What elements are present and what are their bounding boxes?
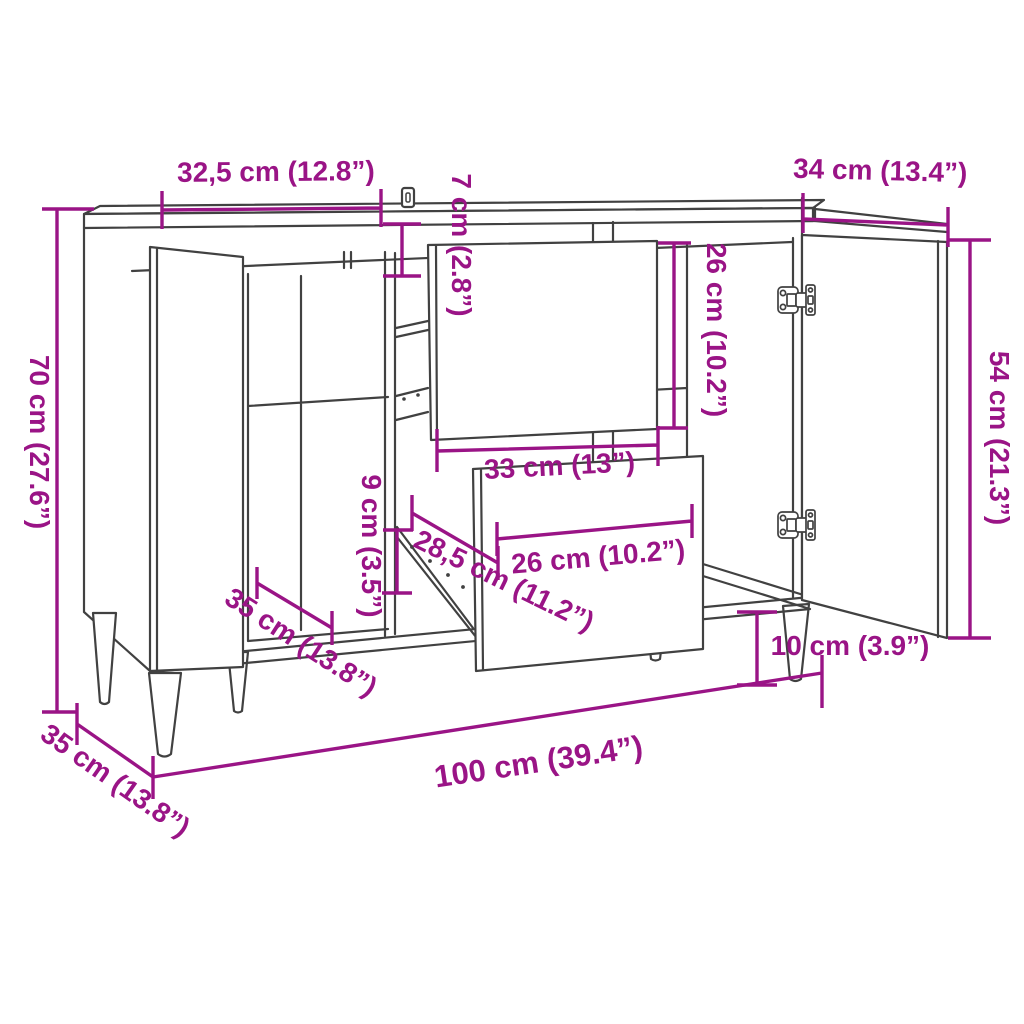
dim-label-drawer-front-height: 26 cm (10.2”) xyxy=(701,243,732,417)
dim-label-top-clearance: 7 cm (2.8”) xyxy=(446,173,477,316)
door-hinge-bottom-icon xyxy=(778,510,815,540)
wall-bracket xyxy=(402,188,414,207)
right-door-panel xyxy=(802,235,947,638)
leg-back-left xyxy=(93,613,116,704)
dim-label-right-door-width: 34 cm (13.4”) xyxy=(793,153,968,189)
dim-label-overall-width: 100 cm (39.4”) xyxy=(432,729,645,795)
dim-overall-width: 100 cm (39.4”) xyxy=(153,655,822,794)
sideboard-dimension-drawing: 32,5 cm (12.8”) 34 cm (13.4”) 7 cm (2.8”… xyxy=(0,0,1024,1024)
dim-label-leg-height: 10 cm (3.9”) xyxy=(771,630,930,661)
dim-door-height: 54 cm (21.3”) xyxy=(948,240,1015,638)
dim-drawer-front-height: 26 cm (10.2”) xyxy=(658,243,732,428)
dim-label-left-door-width: 32,5 cm (12.8”) xyxy=(177,155,375,188)
dimension-diagram-page: 32,5 cm (12.8”) 34 cm (13.4”) 7 cm (2.8”… xyxy=(0,0,1024,1024)
right-door-open xyxy=(778,209,947,638)
dim-label-door-height: 54 cm (21.3”) xyxy=(984,351,1015,525)
left-side-panel-edges xyxy=(84,228,150,671)
upper-drawer-runners xyxy=(396,321,428,420)
top-drawer-panel-edge xyxy=(436,246,437,439)
dim-label-drawer-side-height: 9 cm (3.5”) xyxy=(356,474,387,617)
leg-front-left xyxy=(149,673,181,757)
door-hinge-top-icon xyxy=(778,285,815,315)
dim-label-overall-height: 70 cm (27.6”) xyxy=(24,355,55,529)
